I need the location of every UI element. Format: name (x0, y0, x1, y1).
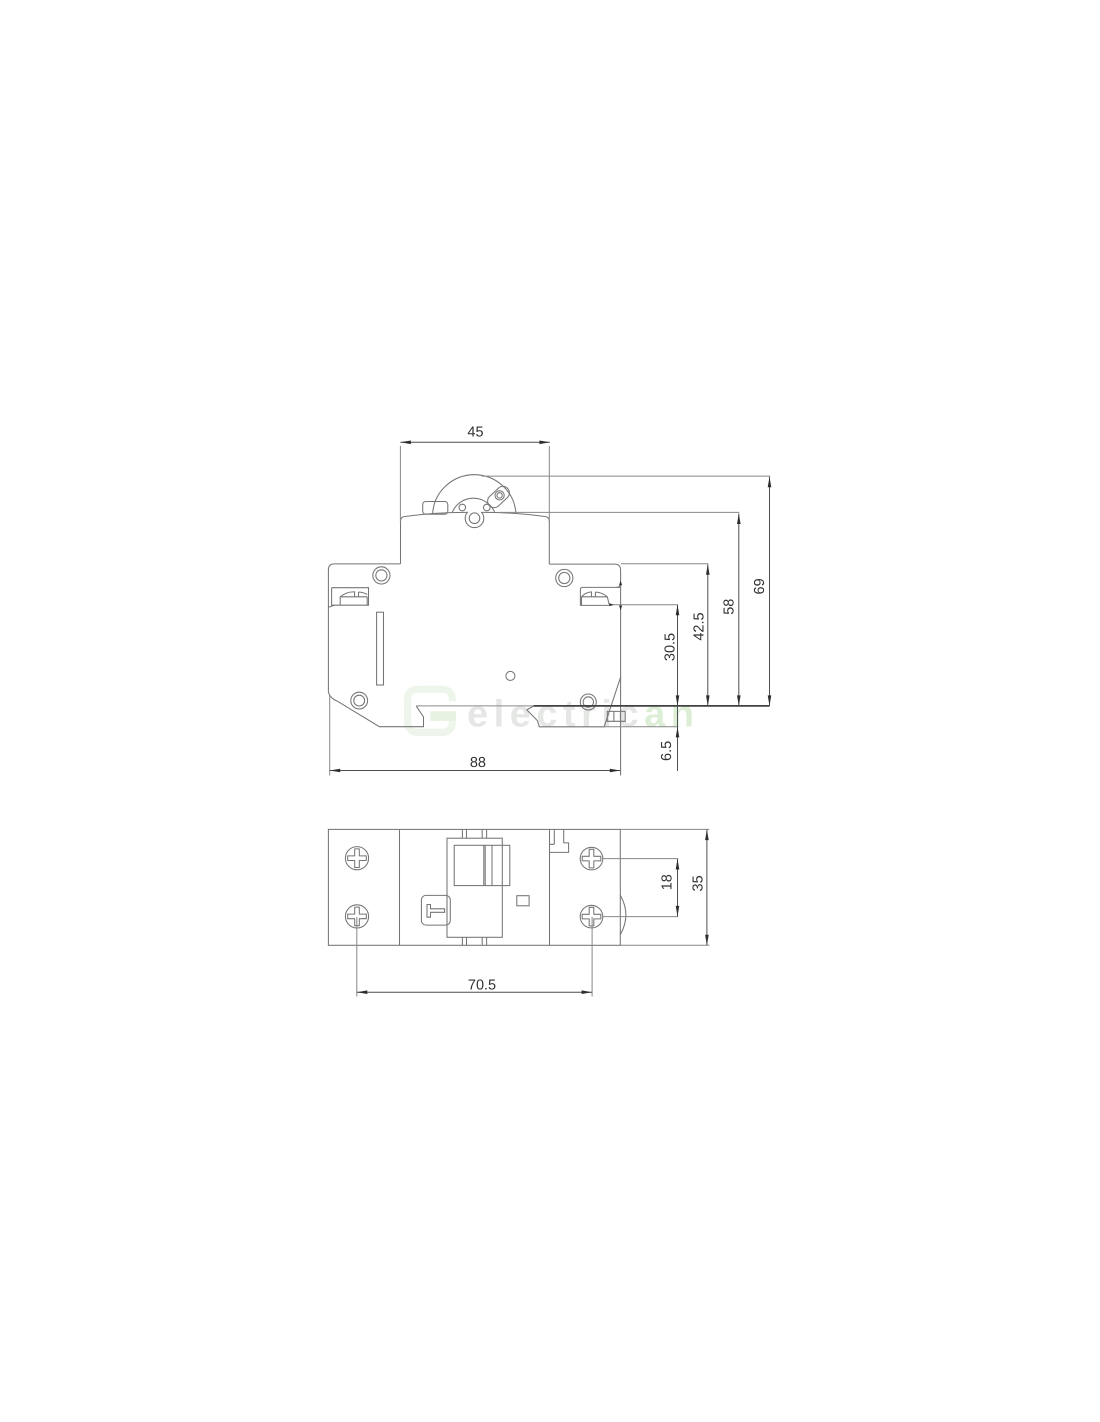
svg-text:88: 88 (470, 755, 486, 771)
svg-text:35: 35 (690, 875, 706, 891)
svg-text:45: 45 (467, 425, 483, 441)
svg-text:30.5: 30.5 (662, 633, 678, 661)
svg-text:69: 69 (752, 578, 768, 594)
svg-text:42.5: 42.5 (692, 612, 708, 640)
svg-text:58: 58 (722, 599, 738, 615)
svg-text:70.5: 70.5 (468, 978, 496, 994)
svg-text:6.5: 6.5 (659, 741, 675, 761)
svg-text:18: 18 (660, 874, 676, 890)
